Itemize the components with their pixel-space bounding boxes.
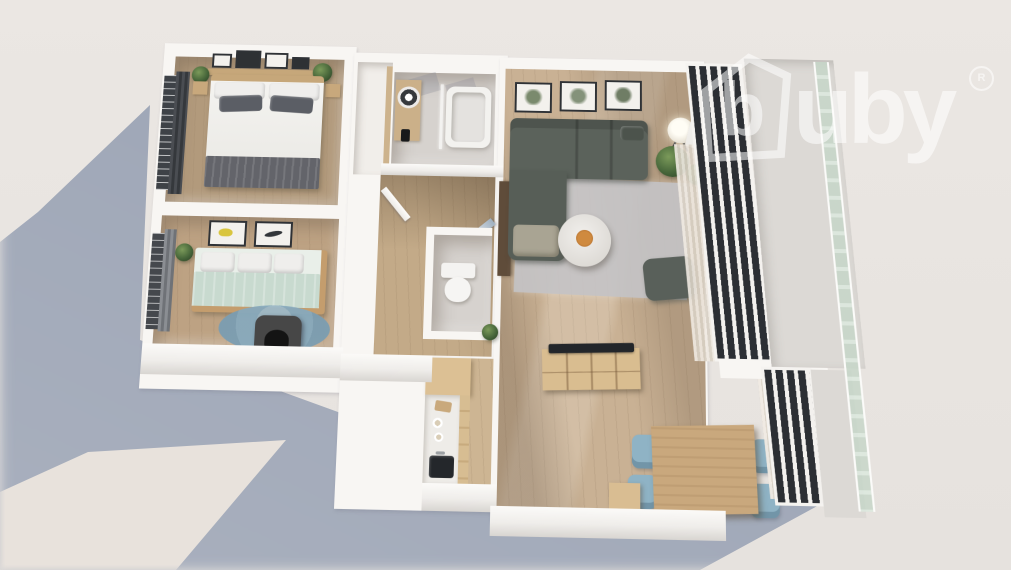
- table-flowers: [576, 230, 593, 247]
- daybed-pillow: [200, 252, 235, 273]
- dining-table: [651, 425, 758, 516]
- bed-pillow-dark: [269, 95, 314, 114]
- kitchen-outer-wall-face: [421, 483, 501, 513]
- bed-pillow-dark: [219, 95, 262, 112]
- sofa-throw-cushion: [513, 225, 559, 258]
- floor-plan-render: b uby R: [0, 0, 1011, 570]
- botanical-print: [515, 82, 553, 113]
- logomark-letter: b: [719, 72, 765, 148]
- bedroom-block-outer-wall-face: [140, 343, 343, 378]
- print-art: [522, 89, 544, 106]
- daybed-duvet: [192, 271, 321, 308]
- kitchen-faucet: [436, 451, 445, 454]
- tv-screen: [549, 343, 635, 353]
- registered-trademark-icon: R: [969, 66, 994, 91]
- nightstand-left: [192, 81, 208, 94]
- side-table: [609, 483, 640, 511]
- toilet-bowl: [444, 277, 471, 303]
- master-picture-frame: [292, 57, 310, 70]
- living-outer-wall-face: [490, 506, 726, 541]
- hallway-outer-wall-face: [340, 354, 433, 383]
- buby-watermark: b uby R: [693, 48, 1005, 170]
- sofa-cushion: [620, 126, 644, 141]
- toilet-tank: [441, 263, 476, 279]
- master-picture-frame: [235, 50, 261, 68]
- master-picture-frame: [264, 53, 288, 69]
- botanical-print: [560, 81, 597, 112]
- bathtub-basin: [451, 92, 486, 142]
- kitchen-sink: [429, 455, 454, 478]
- botanical-print: [605, 80, 642, 111]
- frame-art-yellow: [218, 228, 232, 236]
- daybed-pillow: [237, 252, 272, 273]
- print-art: [568, 88, 590, 105]
- kitchen-cabinet-front: [458, 395, 471, 484]
- detergent-bottle: [401, 129, 410, 142]
- registered-letter: R: [978, 73, 986, 84]
- nightstand-right: [325, 84, 340, 98]
- master-picture-frame: [212, 53, 232, 67]
- tv-sideboard: [542, 348, 641, 391]
- bed-folded-blanket: [204, 156, 320, 189]
- print-art: [613, 87, 635, 103]
- daybed-pillow: [273, 253, 304, 274]
- logo-wordmark: uby: [793, 60, 952, 158]
